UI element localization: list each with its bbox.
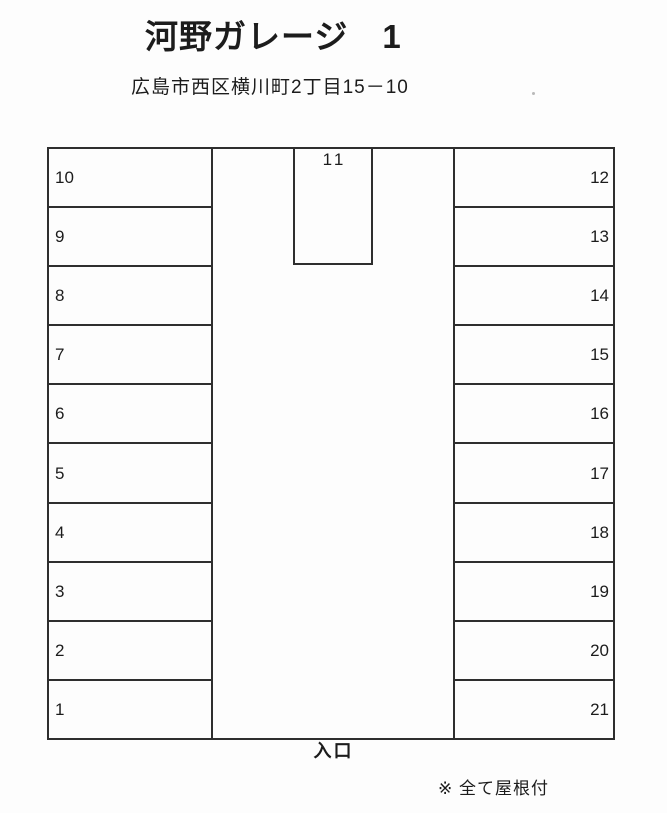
parking-space-16: 16 xyxy=(455,383,613,442)
parking-space-10: 10 xyxy=(49,149,211,206)
scan-artifact-dot xyxy=(532,92,535,95)
page-title: 河野ガレージ 1 xyxy=(145,20,402,53)
address-line: 広島市西区横川町2丁目15－10 xyxy=(131,77,409,100)
parking-space-9: 9 xyxy=(49,206,211,265)
parking-space-14: 14 xyxy=(455,265,613,324)
parking-space-19: 19 xyxy=(455,561,613,620)
parking-space-18: 18 xyxy=(455,502,613,561)
parking-space-8: 8 xyxy=(49,265,211,324)
parking-space-12: 12 xyxy=(455,149,613,206)
parking-space-11-label: 11 xyxy=(320,150,347,170)
left-parking-column: 10 9 8 7 6 5 4 3 2 1 xyxy=(49,149,213,738)
roof-footnote: ※ 全て屋根付 xyxy=(438,779,549,799)
parking-space-7: 7 xyxy=(49,324,211,383)
parking-space-11: 11 xyxy=(293,149,373,265)
parking-space-6: 6 xyxy=(49,383,211,442)
parking-space-13: 13 xyxy=(455,206,613,265)
parking-lot-diagram: 10 9 8 7 6 5 4 3 2 1 12 13 14 15 16 17 1… xyxy=(47,147,615,740)
parking-space-21: 21 xyxy=(455,679,613,738)
right-parking-column: 12 13 14 15 16 17 18 19 20 21 xyxy=(453,149,613,738)
parking-space-17: 17 xyxy=(455,442,613,501)
parking-space-5: 5 xyxy=(49,442,211,501)
parking-space-4: 4 xyxy=(49,502,211,561)
parking-space-3: 3 xyxy=(49,561,211,620)
parking-space-1: 1 xyxy=(49,679,211,738)
parking-space-15: 15 xyxy=(455,324,613,383)
entrance-label: 入口 xyxy=(0,742,667,760)
parking-space-20: 20 xyxy=(455,620,613,679)
parking-space-2: 2 xyxy=(49,620,211,679)
